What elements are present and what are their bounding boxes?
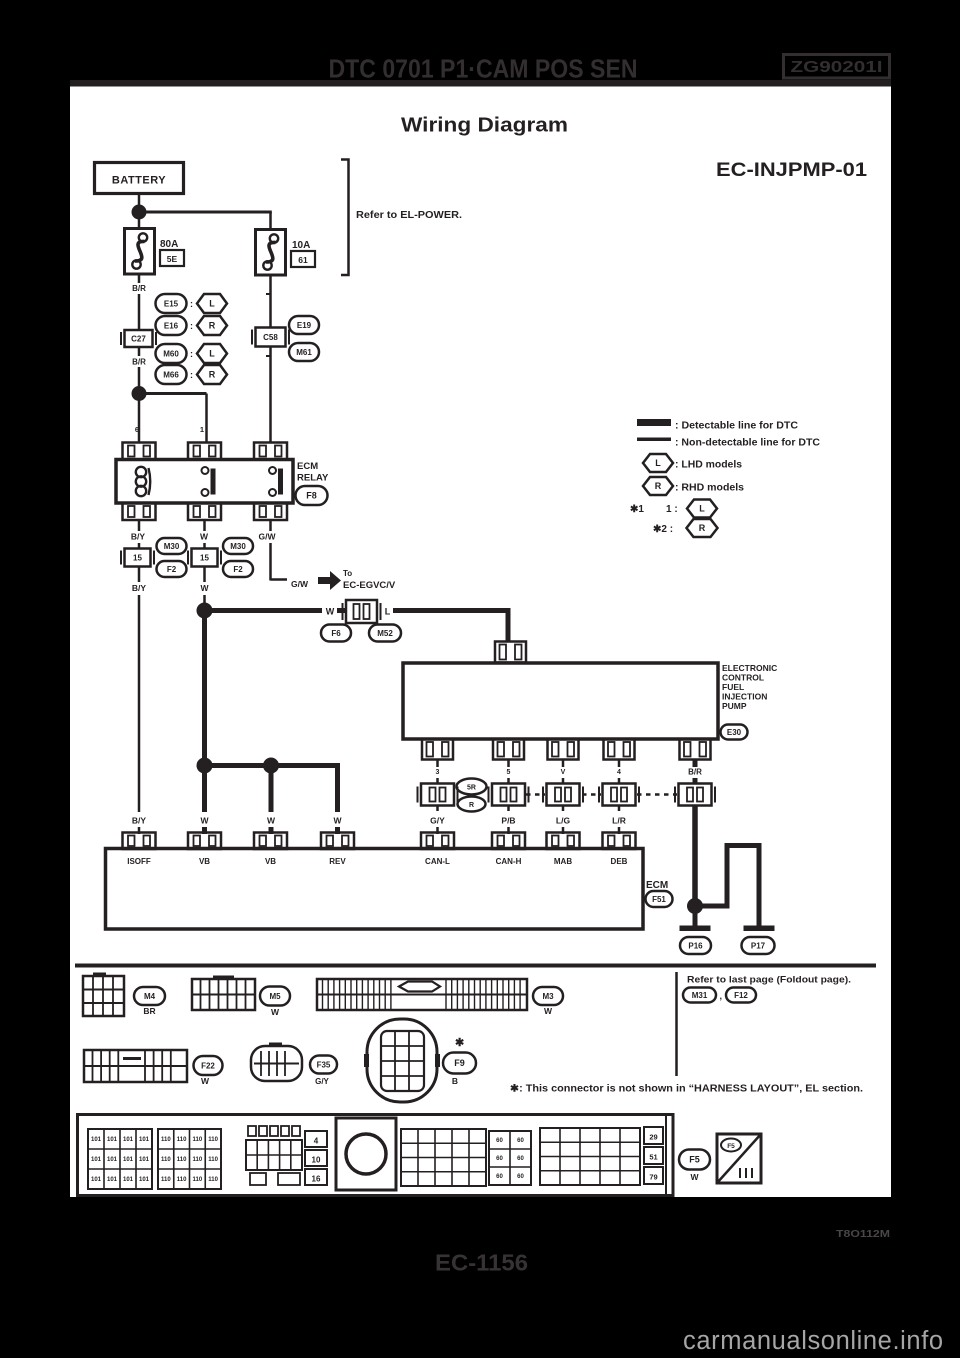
svg-text:ELECTRONIC: ELECTRONIC xyxy=(722,663,777,673)
svg-text:R: R xyxy=(209,370,216,380)
svg-text:60: 60 xyxy=(517,1138,524,1144)
svg-text:L/R: L/R xyxy=(612,816,626,826)
svg-text:F5: F5 xyxy=(727,1143,735,1150)
svg-text::: : xyxy=(190,349,193,359)
svg-text:✱: This connector is not shown: ✱: This connector is not shown in “HARNE… xyxy=(510,1084,863,1095)
svg-text:ZG90201I: ZG90201I xyxy=(791,59,883,76)
svg-text:L: L xyxy=(699,504,705,514)
svg-text:ECM: ECM xyxy=(646,880,668,891)
svg-text:5: 5 xyxy=(507,769,511,776)
svg-text:60: 60 xyxy=(517,1174,524,1180)
svg-text:M3: M3 xyxy=(542,992,554,1001)
svg-text:F2: F2 xyxy=(233,565,243,574)
svg-text:110: 110 xyxy=(177,1157,187,1163)
svg-text:101: 101 xyxy=(123,1177,134,1183)
svg-text:M66: M66 xyxy=(163,370,179,379)
svg-text:To: To xyxy=(343,569,352,578)
svg-text:: RHD models: : RHD models xyxy=(675,483,744,494)
svg-text:4: 4 xyxy=(617,769,621,776)
svg-text::: : xyxy=(190,299,193,309)
svg-text:B: B xyxy=(452,1076,458,1086)
svg-text:110: 110 xyxy=(193,1137,203,1143)
svg-text:R: R xyxy=(209,321,216,331)
svg-text:110: 110 xyxy=(161,1157,171,1163)
svg-text:101: 101 xyxy=(91,1177,102,1183)
svg-text:5R: 5R xyxy=(467,785,476,792)
svg-text:101: 101 xyxy=(139,1157,150,1163)
svg-text:RELAY: RELAY xyxy=(297,473,329,484)
svg-text:CONTROL: CONTROL xyxy=(722,673,764,683)
svg-text:110: 110 xyxy=(193,1157,203,1163)
svg-text:DTC 0701 P1·CAM POS SEN: DTC 0701 P1·CAM POS SEN xyxy=(329,54,638,84)
svg-text:Wiring Diagram: Wiring Diagram xyxy=(401,114,568,137)
svg-text:110: 110 xyxy=(161,1137,171,1143)
svg-text:R: R xyxy=(469,802,474,809)
svg-text:W: W xyxy=(267,816,276,826)
svg-text:W: W xyxy=(271,1007,280,1017)
svg-text:61: 61 xyxy=(298,255,308,265)
svg-text:VB: VB xyxy=(265,857,276,866)
svg-text:F51: F51 xyxy=(652,895,666,904)
svg-text:M61: M61 xyxy=(296,348,312,357)
svg-text:W: W xyxy=(201,1076,210,1086)
svg-text:80A: 80A xyxy=(160,239,178,250)
svg-text:G/Y: G/Y xyxy=(430,816,445,826)
svg-text:PUMP: PUMP xyxy=(722,701,747,711)
svg-text:B/Y: B/Y xyxy=(131,532,146,542)
svg-text:F8: F8 xyxy=(306,491,317,501)
svg-text:1 :: 1 : xyxy=(666,504,678,515)
svg-text:CAN-H: CAN-H xyxy=(496,857,522,866)
svg-text:101: 101 xyxy=(91,1137,102,1143)
svg-text:W: W xyxy=(200,583,209,593)
svg-text:C58: C58 xyxy=(263,333,278,342)
svg-text:✱1: ✱1 xyxy=(630,504,644,515)
svg-text:W: W xyxy=(333,816,342,826)
svg-text:BATTERY: BATTERY xyxy=(112,175,166,187)
svg-text:W: W xyxy=(544,1006,553,1016)
svg-text:101: 101 xyxy=(91,1157,102,1163)
svg-text:15: 15 xyxy=(133,554,142,563)
svg-text:F12: F12 xyxy=(734,991,748,1000)
svg-text:CAN-L: CAN-L xyxy=(425,857,450,866)
svg-text:110: 110 xyxy=(161,1177,171,1183)
svg-text:EC-1156: EC-1156 xyxy=(435,1250,528,1276)
svg-text:15: 15 xyxy=(200,554,209,563)
svg-text:M5: M5 xyxy=(269,992,281,1001)
svg-text:1: 1 xyxy=(200,425,204,434)
svg-text:E16: E16 xyxy=(164,321,179,330)
svg-text:101: 101 xyxy=(123,1157,134,1163)
svg-text:V: V xyxy=(561,769,566,776)
svg-text:110: 110 xyxy=(177,1137,187,1143)
svg-text:110: 110 xyxy=(208,1157,218,1163)
svg-text:✱: ✱ xyxy=(455,1037,464,1049)
svg-text:101: 101 xyxy=(123,1137,134,1143)
svg-text:M60: M60 xyxy=(163,349,179,358)
svg-text:C27: C27 xyxy=(131,335,146,344)
svg-text:29: 29 xyxy=(649,1133,657,1142)
svg-text:B/R: B/R xyxy=(132,358,146,367)
svg-text:FUEL: FUEL xyxy=(722,682,744,692)
svg-text:REV: REV xyxy=(329,857,346,866)
svg-text:W: W xyxy=(200,532,209,542)
svg-text:E19: E19 xyxy=(297,321,312,330)
svg-text:M52: M52 xyxy=(377,629,393,638)
svg-text:B/Y: B/Y xyxy=(132,583,147,593)
svg-text:60: 60 xyxy=(496,1138,503,1144)
svg-text:51: 51 xyxy=(649,1153,657,1162)
svg-text:101: 101 xyxy=(107,1157,118,1163)
svg-text:E30: E30 xyxy=(727,728,742,737)
svg-text:DEB: DEB xyxy=(611,857,628,866)
svg-text:L: L xyxy=(209,349,215,359)
svg-text:B/R: B/R xyxy=(132,284,146,293)
svg-text:EC-INJPMP-01: EC-INJPMP-01 xyxy=(716,160,867,181)
svg-text:P16: P16 xyxy=(688,941,703,950)
svg-text:F35: F35 xyxy=(317,1060,331,1069)
svg-text:16: 16 xyxy=(312,1175,321,1184)
svg-text:79: 79 xyxy=(649,1173,657,1182)
svg-text:: Detectable line for DTC: : Detectable line for DTC xyxy=(675,421,798,432)
svg-text::: : xyxy=(190,321,193,331)
svg-text:EC-EGVC/V: EC-EGVC/V xyxy=(343,580,396,591)
svg-text:101: 101 xyxy=(139,1137,150,1143)
svg-text:M30: M30 xyxy=(230,542,246,551)
svg-text:: Non-detectable line for DTC: : Non-detectable line for DTC xyxy=(675,438,820,449)
svg-text:ISOFF: ISOFF xyxy=(127,857,151,866)
svg-text:4: 4 xyxy=(314,1137,319,1146)
svg-text::: : xyxy=(190,370,193,380)
svg-text:3: 3 xyxy=(436,769,440,776)
svg-text:R: R xyxy=(699,523,706,533)
svg-text:carmanualsonline.info: carmanualsonline.info xyxy=(683,1327,944,1355)
svg-text:P/B: P/B xyxy=(501,816,515,826)
svg-text:T8O112M: T8O112M xyxy=(836,1228,890,1240)
svg-text:M31: M31 xyxy=(692,991,708,1000)
svg-text:10: 10 xyxy=(312,1156,321,1165)
svg-text:60: 60 xyxy=(496,1174,503,1180)
svg-text:110: 110 xyxy=(208,1177,218,1183)
svg-text:60: 60 xyxy=(517,1156,524,1162)
svg-text:Refer to last page (Foldout pa: Refer to last page (Foldout page). xyxy=(687,975,851,986)
svg-text:L: L xyxy=(655,458,661,468)
svg-text:F9: F9 xyxy=(454,1058,465,1068)
svg-text:,: , xyxy=(720,991,723,1001)
svg-text:W: W xyxy=(200,816,209,826)
svg-text:W: W xyxy=(690,1172,699,1182)
svg-text:: LHD models: : LHD models xyxy=(675,460,742,471)
svg-text:F5: F5 xyxy=(689,1155,700,1165)
svg-text:101: 101 xyxy=(107,1177,118,1183)
svg-text:110: 110 xyxy=(193,1177,203,1183)
svg-text:L: L xyxy=(209,299,215,309)
svg-text:ECM: ECM xyxy=(297,461,318,472)
svg-text:M30: M30 xyxy=(164,542,180,551)
svg-text:60: 60 xyxy=(496,1156,503,1162)
svg-text:G/W: G/W xyxy=(259,532,277,542)
svg-text:110: 110 xyxy=(177,1177,187,1183)
svg-text:6: 6 xyxy=(135,425,139,434)
svg-text:10A: 10A xyxy=(292,240,310,251)
svg-text:101: 101 xyxy=(139,1177,150,1183)
svg-text:✱2 :: ✱2 : xyxy=(653,524,673,535)
svg-text:MAB: MAB xyxy=(554,857,572,866)
svg-text:G/W: G/W xyxy=(291,579,309,589)
svg-text:E15: E15 xyxy=(164,299,179,308)
svg-text:Refer to EL-POWER.: Refer to EL-POWER. xyxy=(356,209,462,221)
svg-text:INJECTION: INJECTION xyxy=(722,692,767,702)
svg-text:L/G: L/G xyxy=(556,816,571,826)
svg-text:M4: M4 xyxy=(144,992,156,1001)
svg-text:L: L xyxy=(385,607,391,617)
svg-text:VB: VB xyxy=(199,857,210,866)
svg-text:B/Y: B/Y xyxy=(132,816,147,826)
svg-text:P17: P17 xyxy=(751,941,766,950)
svg-text:5E: 5E xyxy=(167,254,178,264)
svg-text:R: R xyxy=(655,481,662,491)
svg-text:110: 110 xyxy=(208,1137,218,1143)
svg-text:F22: F22 xyxy=(201,1061,215,1070)
svg-text:BR: BR xyxy=(143,1006,155,1016)
svg-text:B/R: B/R xyxy=(688,768,702,777)
svg-text:F6: F6 xyxy=(331,629,341,638)
svg-text:101: 101 xyxy=(107,1137,118,1143)
svg-text:W: W xyxy=(326,607,335,617)
svg-text:F2: F2 xyxy=(167,565,177,574)
svg-text:G/Y: G/Y xyxy=(315,1077,329,1086)
